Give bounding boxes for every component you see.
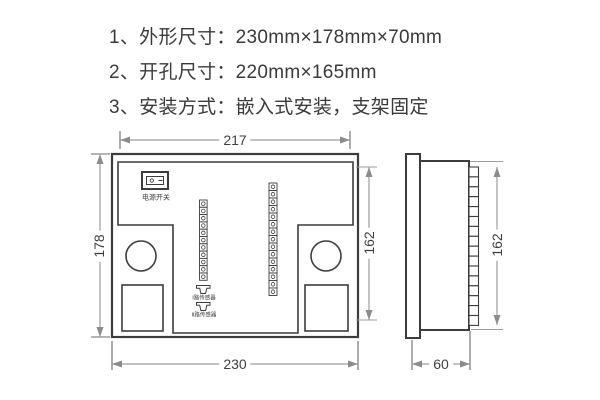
installation-dimension-drawing: 1、外形尺寸：230mm×178mm×70mm 2、开孔尺寸：220mm×165… [0,0,600,400]
dimension-extension-lines [356,162,503,330]
dimension-ticks [91,131,470,370]
dim-front-height-left: 178 [92,230,106,261]
side-terminal-ladder [469,167,479,325]
dim-side-height-right: 162 [490,229,504,260]
front-outer-outline [112,154,358,337]
drawing-canvas [0,0,600,400]
side-body [420,161,469,330]
terminal-strip-right [269,183,277,296]
terminal-strip-left [200,200,208,280]
corner-pad-right [305,285,348,331]
mounting-hole-right [311,241,341,271]
sensor-2-label: Ⅱ路传感器 [192,313,217,319]
side-front-bezel [406,154,420,338]
dim-side-depth-bottom: 60 [429,357,453,371]
dim-front-height-right: 162 [362,227,376,258]
power-switch [142,172,168,189]
switch-off-symbol [150,179,153,182]
corner-pad-left [122,285,163,331]
front-view [112,154,358,337]
dim-front-width-bottom: 230 [219,357,250,371]
mounting-hole-left [126,241,156,271]
dim-front-width-top: 217 [219,133,250,147]
power-switch-label: 电源开关 [142,195,170,202]
sensor-connector-1 [197,286,211,294]
sensor-1-label: Ⅰ路传感器 [192,296,216,302]
side-view [406,154,479,338]
sensor-connector-2 [197,303,211,311]
